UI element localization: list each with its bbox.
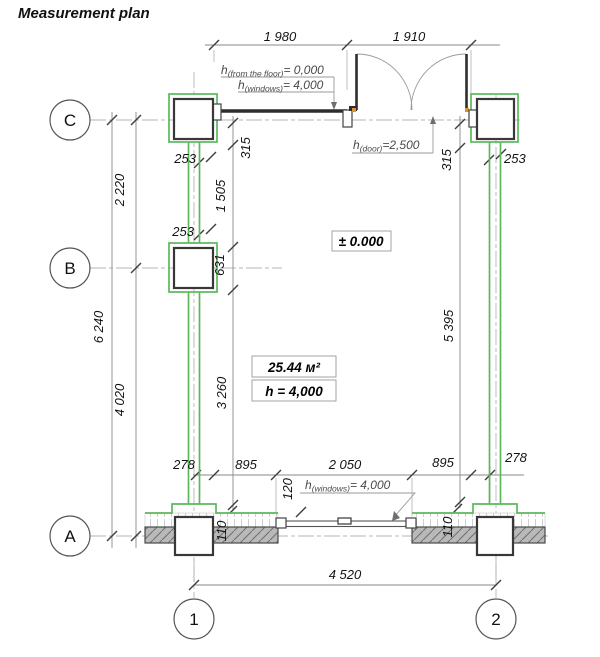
column-c2	[477, 99, 514, 139]
dim-int-315-left: 315	[238, 136, 253, 158]
room-area-text: 25.44 м²	[267, 360, 321, 375]
dimension-labels-vertical: 2 220 6 240 4 020 315 1 505 631 3 260 31…	[91, 136, 456, 541]
dim-bot-895-right: 895	[432, 455, 454, 470]
column-a2	[477, 517, 513, 555]
svg-text:C: C	[64, 111, 76, 130]
dim-left-6240: 6 240	[91, 310, 106, 343]
height-annotations: h(from the floor)= 0,000 h(windows)= 4,0…	[221, 63, 420, 494]
level-mark-text: ± 0.000	[339, 234, 384, 249]
dim-wall-253-right: 253	[503, 151, 526, 166]
dim-int-5395: 5 395	[441, 309, 456, 342]
window-jamb	[406, 518, 416, 528]
window-mullion	[338, 518, 351, 524]
dim-int-631: 631	[212, 254, 227, 276]
dim-int-315-right: 315	[439, 148, 454, 170]
page-title: Measurement plan	[18, 5, 150, 22]
column-b1	[174, 248, 213, 288]
dim-left-4020: 4 020	[112, 383, 127, 416]
svg-text:B: B	[64, 259, 75, 278]
door-hinge-marker	[352, 108, 356, 112]
window-jamb	[343, 110, 352, 127]
dim-top-door: 1 910	[393, 29, 426, 44]
dim-bot-2050: 2 050	[328, 457, 362, 472]
note-door-height: h(door)=2,500	[353, 138, 420, 154]
dim-bot-110-left: 110	[214, 520, 229, 541]
dim-bot-120: 120	[280, 477, 295, 499]
dim-int-1505: 1 505	[213, 179, 228, 212]
note-floor-level: h(from the floor)= 0,000	[221, 63, 324, 79]
column-a1	[175, 517, 213, 555]
entrance-double-door	[349, 54, 478, 127]
note-windows-bottom: h(windows)= 4,000	[305, 478, 391, 494]
svg-text:2: 2	[491, 610, 500, 629]
boxed-notes: ± 0.000 25.44 м² h = 4,000	[252, 231, 391, 401]
grid-bubble-a: A	[50, 516, 90, 556]
dim-int-3260: 3 260	[214, 376, 229, 409]
column-c1	[174, 99, 213, 139]
grid-bubble-1: 1	[174, 599, 214, 639]
svg-text:1: 1	[189, 610, 198, 629]
grid-bubble-b: B	[50, 248, 90, 288]
dim-bot-110-right: 110	[440, 516, 455, 537]
note-windows-top: h(windows)= 4,000	[238, 78, 324, 94]
grid-bubble-c: C	[50, 100, 90, 140]
dim-top-window: 1 980	[264, 29, 297, 44]
door-swing-arc	[411, 54, 466, 110]
svg-text:A: A	[64, 527, 76, 546]
dim-bot-total: 4 520	[329, 567, 362, 582]
room-height-text: h = 4,000	[265, 384, 323, 399]
dim-wall-253-lower: 253	[171, 224, 194, 239]
grid-bubble-2: 2	[476, 599, 516, 639]
dim-left-2220: 2 220	[112, 173, 127, 207]
dim-bot-895-left: 895	[235, 457, 257, 472]
dim-wall-253-upper: 253	[173, 151, 196, 166]
door-swing-arc	[357, 54, 412, 110]
window-jamb	[276, 518, 286, 528]
door-hinge-marker	[465, 108, 469, 112]
dim-bot-278-left: 278	[172, 457, 195, 472]
measurement-plan-page: Measurement plan	[0, 0, 600, 657]
dim-bot-278-right: 278	[504, 450, 527, 465]
measurement-plan-drawing: Measurement plan	[0, 0, 600, 657]
green-wall-outlines	[145, 94, 545, 513]
